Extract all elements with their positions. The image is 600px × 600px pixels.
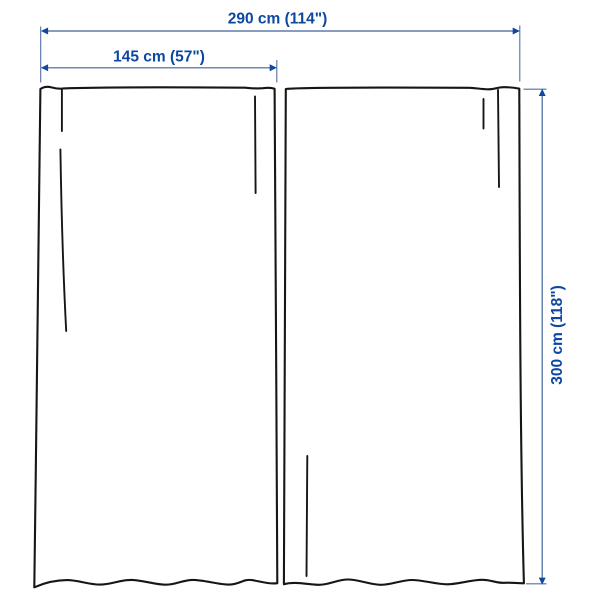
svg-text:290 cm (114"): 290 cm (114") xyxy=(228,11,328,28)
svg-text:145 cm (57"): 145 cm (57") xyxy=(113,48,205,65)
svg-text:300 cm (118"): 300 cm (118") xyxy=(549,285,566,385)
